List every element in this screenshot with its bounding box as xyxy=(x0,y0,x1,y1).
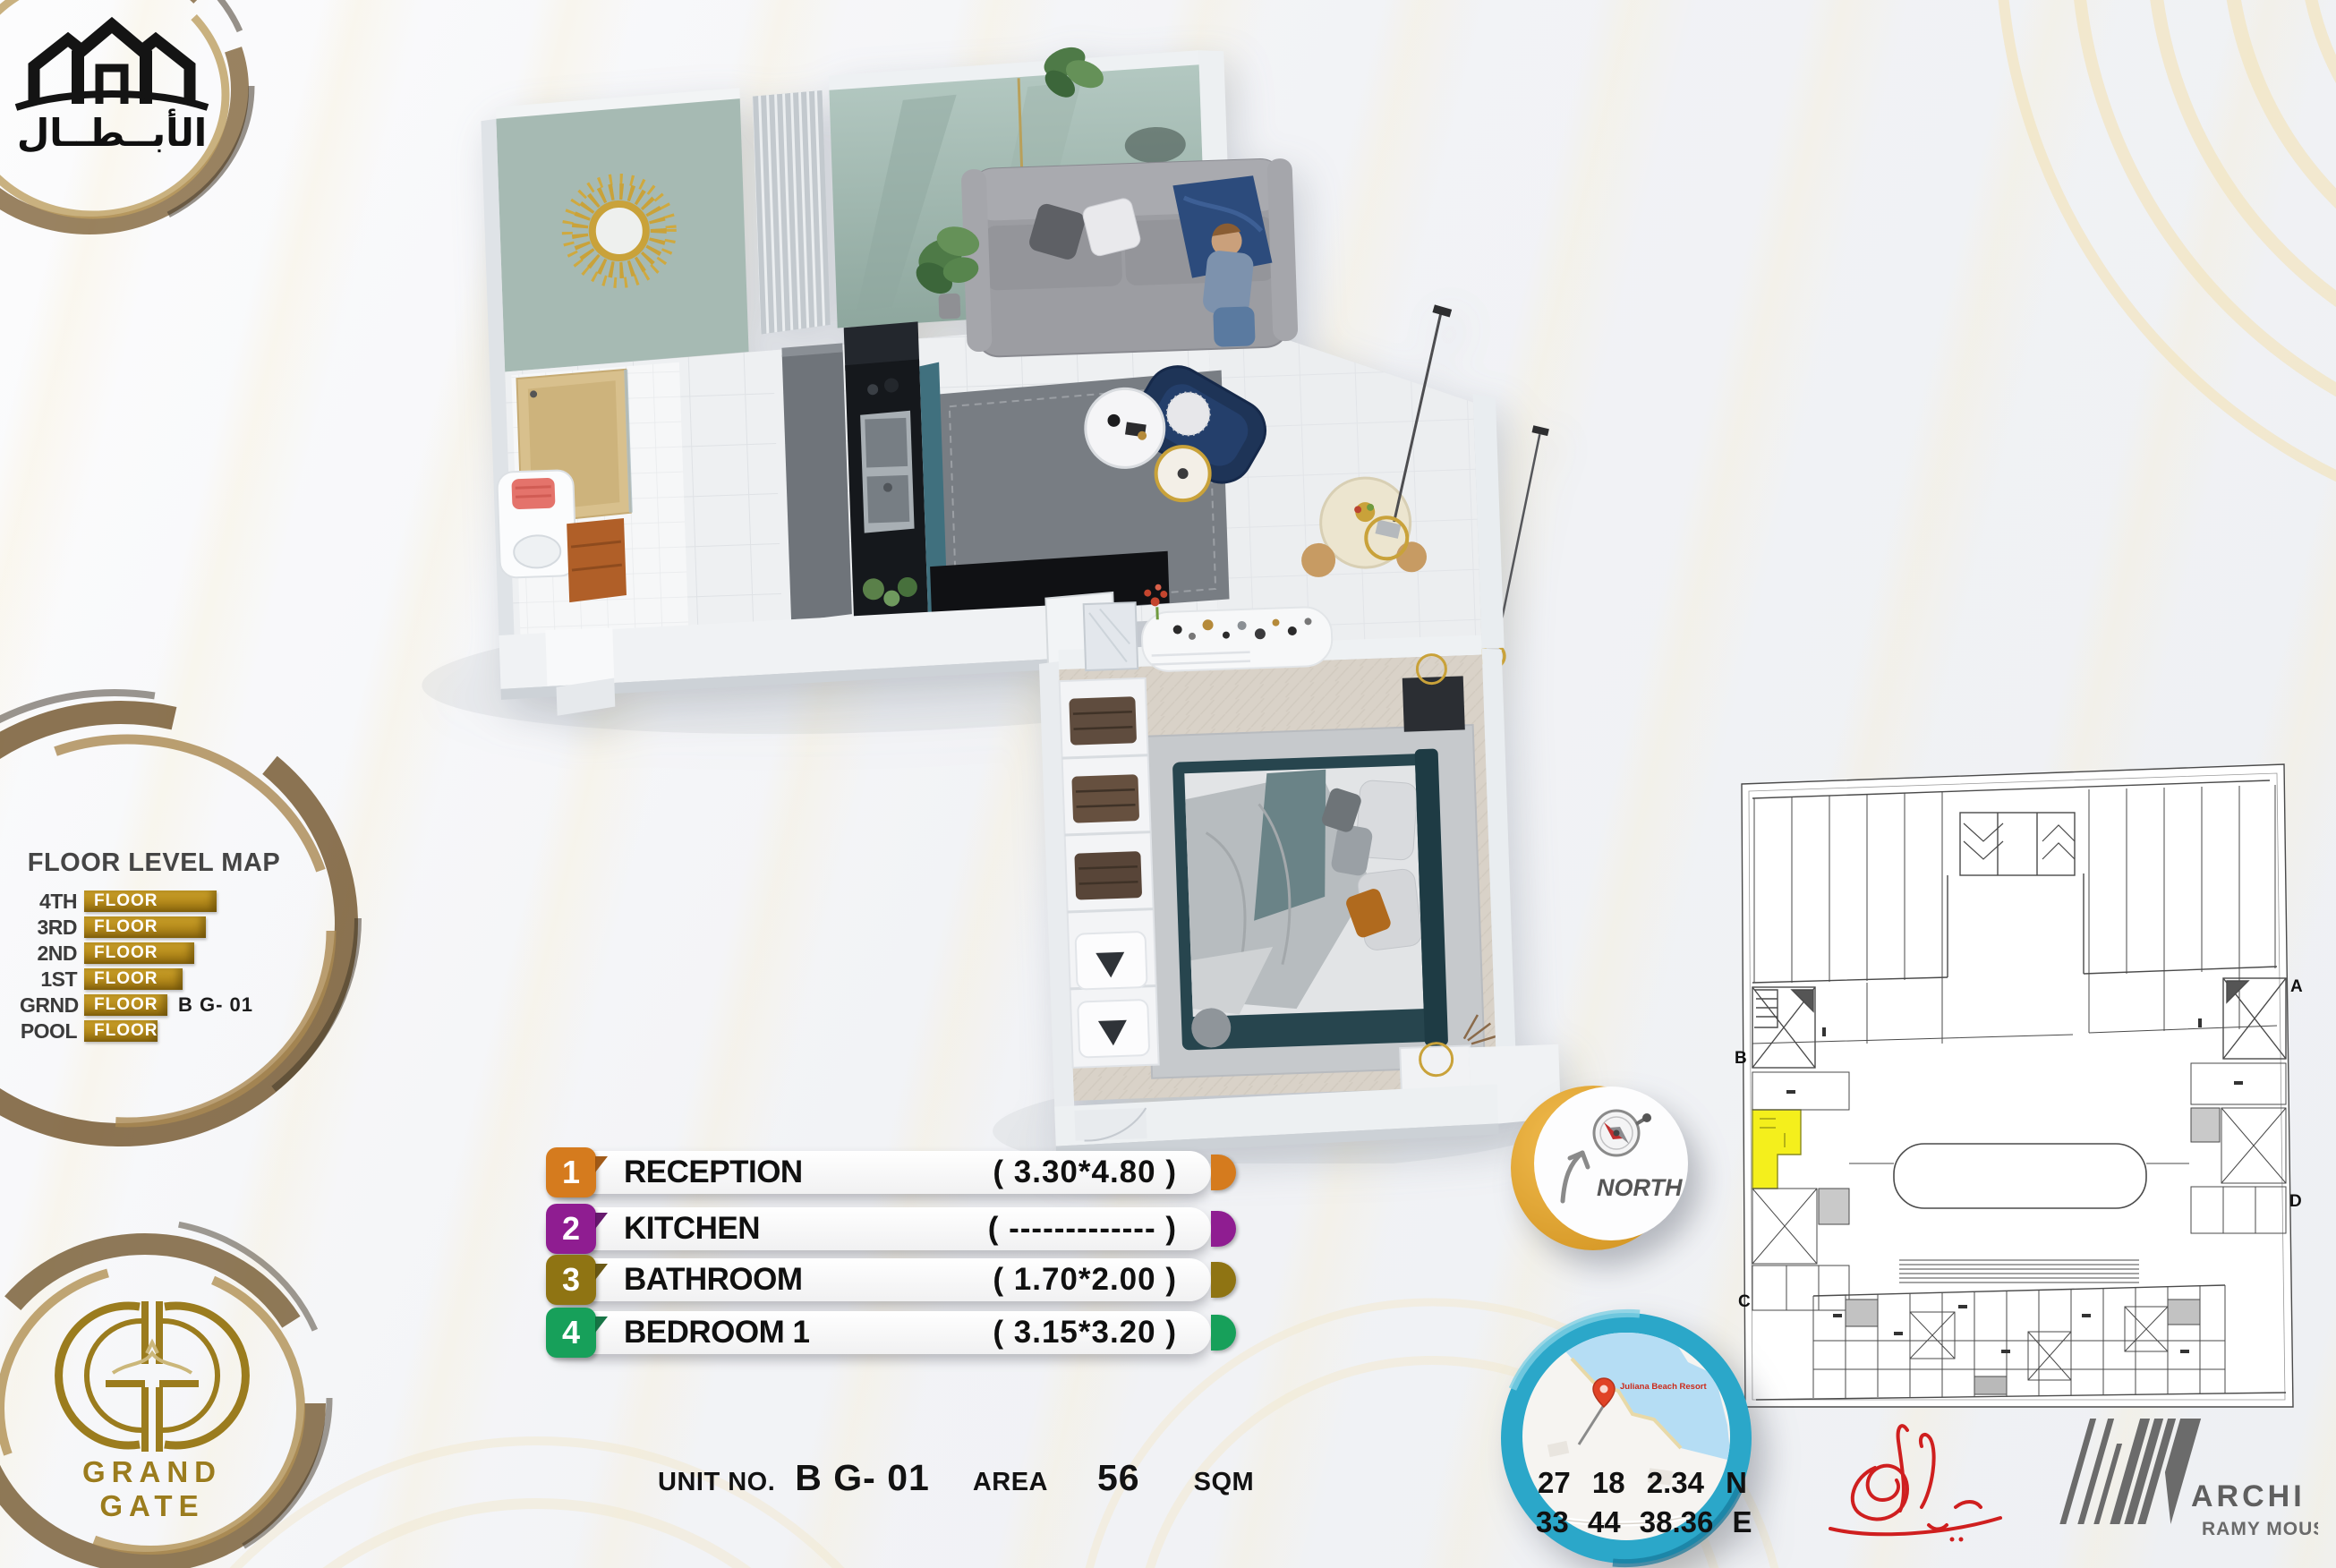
map-pin-label: Juliana Beach Resort xyxy=(1620,1382,1707,1392)
unit-info: UNIT NO. B G- 01 AREA 56 SQM xyxy=(658,1457,1254,1499)
apartment-3d-render xyxy=(419,34,1618,1163)
unit-no-label: UNIT NO. xyxy=(658,1468,775,1497)
legend-cap xyxy=(1211,1315,1236,1351)
north-label: NORTH xyxy=(1597,1174,1683,1201)
grand-gate-logo: GRAND GATE xyxy=(36,1291,269,1523)
floor-bar: FLOOR xyxy=(84,968,183,990)
legend-row-bedroom: 4 BEDROOM 1 ( 3.15*3.20 ) xyxy=(549,1311,1236,1354)
legend-number-badge: 1 xyxy=(546,1147,596,1197)
location-map-badge: Juliana Beach Resort 27 18 2.34 N 33 44 … xyxy=(1496,1308,1756,1568)
room-name: BEDROOM 1 xyxy=(624,1315,809,1351)
legend-row-kitchen: 2 KITCHEN ( ------------- ) xyxy=(549,1207,1236,1250)
studio-name: ARCHI HUB xyxy=(2191,1479,2318,1513)
floor-bar: FLOOR xyxy=(84,1020,158,1042)
architect-name: RAMY MOUSTAFA xyxy=(2202,1519,2318,1539)
legend-row-reception: 1 RECEPTION ( 3.30*4.80 ) xyxy=(549,1151,1236,1194)
room-dimensions: ( 3.30*4.80 ) xyxy=(993,1155,1177,1190)
room-dimensions: ( 1.70*2.00 ) xyxy=(993,1262,1177,1298)
plan-label-b: B xyxy=(1735,1049,1747,1068)
legend-cap xyxy=(1211,1262,1236,1298)
map-coords-lat: 27 18 2.34 N xyxy=(1538,1466,1747,1499)
room-name: BATHROOM xyxy=(624,1262,803,1298)
north-compass-badge: NORTH xyxy=(1511,1074,1699,1262)
building-site-plan: A B C D xyxy=(1733,759,2306,1421)
developer-logo: الأبــطــال xyxy=(9,4,215,155)
signature-mark xyxy=(1821,1414,2018,1557)
map-coords-lon: 33 44 38.36 E xyxy=(1536,1505,1752,1538)
houses-icon xyxy=(9,4,215,120)
floor-row-grnd: GRND FLOOR B G- 01 xyxy=(20,994,288,1016)
floor-level-map-title: FLOOR LEVEL MAP xyxy=(20,848,288,878)
unit-no-value: B G- 01 xyxy=(795,1457,930,1499)
legend-number-badge: 3 xyxy=(546,1255,596,1305)
legend-row-bathroom: 3 BATHROOM ( 1.70*2.00 ) xyxy=(549,1258,1236,1301)
area-label: AREA xyxy=(973,1468,1048,1497)
floor-row-pool: POOL FLOOR xyxy=(20,1020,288,1042)
legend-cap xyxy=(1211,1155,1236,1190)
floor-bar: FLOOR xyxy=(84,891,217,912)
current-unit-tag: B G- 01 xyxy=(178,993,253,1017)
grand-gate-emblem-icon xyxy=(36,1291,269,1461)
floor-row-3rd: 3RD FLOOR xyxy=(20,916,288,938)
area-value: 56 xyxy=(1097,1457,1140,1499)
legend-number-badge: 4 xyxy=(546,1308,596,1358)
floor-bar: FLOOR xyxy=(84,942,194,964)
floor-row-4th: 4TH FLOOR xyxy=(20,891,288,912)
area-unit: SQM xyxy=(1194,1468,1255,1497)
floor-bar: FLOOR xyxy=(84,916,206,938)
floor-row-2nd: 2ND FLOOR xyxy=(20,942,288,964)
developer-name-arabic: الأبــطــال xyxy=(9,111,215,155)
poster-canvas: الأبــطــال FLOOR LEVEL MAP 4TH FLOOR 3R… xyxy=(0,0,2336,1568)
room-dimensions: ( 3.15*3.20 ) xyxy=(993,1315,1177,1351)
room-name: RECEPTION xyxy=(624,1155,803,1190)
room-dimensions: ( ------------- ) xyxy=(988,1211,1177,1247)
floor-level-map: FLOOR LEVEL MAP 4TH FLOOR 3RD FLOOR 2ND … xyxy=(20,848,288,1046)
floor-row-1st: 1ST FLOOR xyxy=(20,968,288,990)
room-name: KITCHEN xyxy=(624,1211,760,1247)
legend-number-badge: 2 xyxy=(546,1204,596,1254)
grand-gate-wordmark: GRAND GATE xyxy=(36,1455,269,1523)
plan-label-a: A xyxy=(2290,977,2303,996)
archi-hub-logo: ARCHI HUB RAMY MOUSTAFA xyxy=(2032,1410,2318,1557)
room-legend: 1 RECEPTION ( 3.30*4.80 ) 2 KITCHEN ( --… xyxy=(549,1151,1265,1384)
floor-bar: FLOOR xyxy=(84,994,167,1016)
legend-cap xyxy=(1211,1211,1236,1247)
plan-label-d: D xyxy=(2289,1192,2302,1211)
